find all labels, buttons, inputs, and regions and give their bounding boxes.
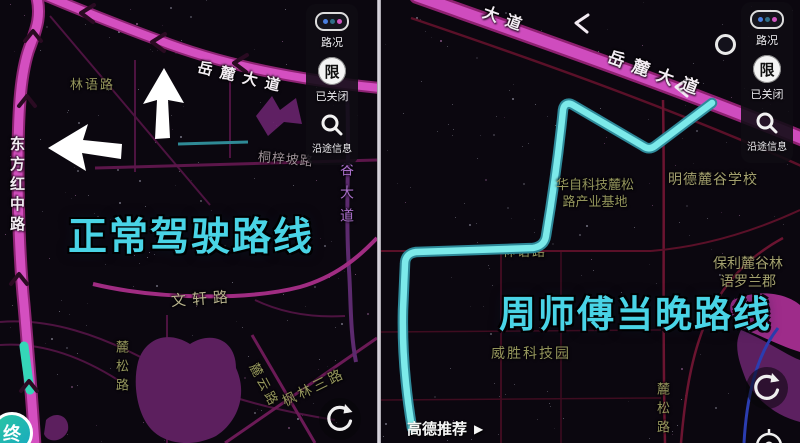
along-route-label: 沿途信息 bbox=[312, 140, 352, 155]
restriction-limit-icon[interactable]: 限 bbox=[318, 57, 346, 85]
traffic-toggle-icon[interactable] bbox=[750, 10, 784, 29]
traffic-dot-pink bbox=[337, 19, 342, 24]
restriction-limit-icon[interactable]: 限 bbox=[753, 55, 781, 83]
search-icon[interactable] bbox=[320, 113, 344, 137]
map-left-normal-route[interactable]: 岳麓大道 林语路 东方红中路 桐梓坡路 谷大道 文轩路 麓松路 麓云路 枫林三路… bbox=[0, 0, 377, 443]
map-controls-panel-right: 路况 限 已关闭 沿途信息 bbox=[741, 2, 793, 163]
road-label-gu-avenue: 谷大道 bbox=[337, 162, 357, 231]
annotation-actual-route: 周师傅当晚路线 bbox=[499, 284, 772, 338]
road-label-linyu: 林语路 bbox=[70, 74, 115, 93]
traffic-dot-blue bbox=[758, 17, 763, 22]
poi-label-mingde: 明德麓谷学校 bbox=[668, 169, 758, 189]
poi-label-weisheng: 威胜科技园 bbox=[491, 343, 571, 363]
road-label-wenxuan: 文轩路 bbox=[170, 286, 234, 311]
refresh-icon[interactable] bbox=[745, 366, 789, 410]
amap-recommend-tag[interactable]: 高德推荐 ▶ bbox=[407, 418, 483, 439]
traffic-label: 路况 bbox=[321, 34, 343, 50]
traffic-label: 路况 bbox=[756, 32, 778, 48]
road-label-lusong-left: 麓松路 bbox=[112, 340, 131, 397]
traffic-dot-pink bbox=[772, 17, 777, 22]
screen: 岳麓大道 林语路 东方红中路 桐梓坡路 谷大道 文轩路 麓松路 麓云路 枫林三路… bbox=[0, 0, 800, 443]
traffic-toggle-icon[interactable] bbox=[315, 12, 349, 31]
up-arrow-icon bbox=[143, 68, 184, 139]
poi-label-huazi: 华自科技麓松 路产业基地 bbox=[537, 177, 653, 211]
traffic-dot-teal bbox=[330, 19, 335, 24]
traffic-dot-teal bbox=[765, 17, 770, 22]
map-controls-panel-left: 路况 限 已关闭 沿途信息 bbox=[306, 4, 358, 165]
right-map-canvas bbox=[381, 0, 800, 443]
poi-huazi-line2: 路产业基地 bbox=[537, 194, 653, 211]
search-icon[interactable] bbox=[755, 111, 779, 135]
split-divider bbox=[377, 0, 381, 443]
compass-icon[interactable] bbox=[749, 426, 789, 443]
amap-recommend-label: 高德推荐 bbox=[407, 418, 467, 439]
refresh-icon[interactable] bbox=[318, 397, 362, 441]
actual-route-path bbox=[403, 103, 712, 428]
right-grid-roads bbox=[381, 18, 800, 443]
left-arrow-icon bbox=[48, 124, 122, 171]
annotation-arrows bbox=[48, 68, 184, 171]
road-label-lusong-right: 麓松路 bbox=[653, 382, 672, 439]
annotation-normal-route: 正常驾驶路线 bbox=[68, 206, 314, 262]
poi-huazi-line1: 华自科技麓松 bbox=[537, 177, 653, 194]
play-icon: ▶ bbox=[474, 422, 483, 436]
map-right-actual-route[interactable]: 大道 岳麓大道 林语路 华自科技麓松 路产业基地 明德麓谷学校 保利麓谷林 语罗… bbox=[381, 0, 800, 443]
hidden-round-button bbox=[715, 34, 736, 55]
poi-baoli-line1: 保利麓谷林 bbox=[705, 254, 791, 272]
along-route-label: 沿途信息 bbox=[747, 138, 787, 153]
restriction-status: 已关闭 bbox=[751, 86, 784, 102]
road-label-dongfanghong: 东方红中路 bbox=[6, 136, 27, 236]
restriction-status: 已关闭 bbox=[316, 88, 349, 104]
traffic-dot-blue bbox=[323, 19, 328, 24]
